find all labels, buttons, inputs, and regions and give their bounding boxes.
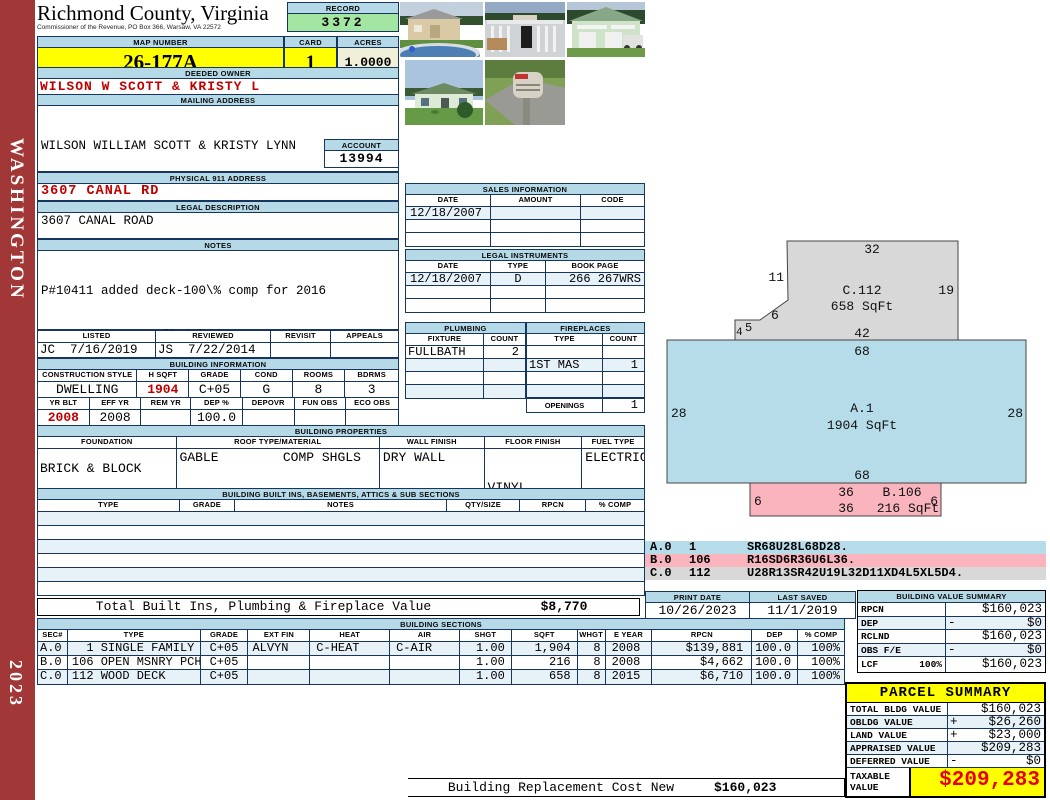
builtins-rpcn-label: RPCN	[520, 500, 586, 511]
appeals-value	[331, 343, 398, 357]
builtins-type-label: TYPE	[38, 500, 180, 511]
effyr-value: 2008	[90, 410, 142, 425]
last-saved-value: 11/1/2019	[750, 603, 856, 619]
replacement-cost-value: $160,023	[714, 779, 844, 796]
plumbing-row: FULLBATH 2	[406, 346, 525, 359]
sales-row: 12/18/2007	[406, 207, 644, 220]
builtins-empty-row	[38, 540, 644, 554]
review-section: LISTED REVIEWED REVISIT APPEALS JC 7/16/…	[37, 330, 399, 358]
parcel-summary-label: PARCEL SUMMARY	[847, 684, 1044, 703]
sketch-legend: A.0 1 SR68U28L68D28. B.0 106 R16SD6R36U6…	[645, 541, 1046, 580]
bs-type-label: TYPE	[68, 630, 201, 641]
sketch-c-dim-notch-w: 5	[745, 321, 752, 335]
sketch-b-dim-top: 36	[838, 485, 854, 500]
wall-finish-label: WALL FINISH	[380, 437, 485, 448]
sketch-c-dim-notch-h: 4	[736, 327, 743, 339]
deeded-owner-label: DEEDED OWNER	[37, 67, 399, 79]
construction-style-label: CONSTRUCTION STYLE	[38, 370, 137, 381]
sales-amount-label: AMOUNT	[491, 195, 581, 206]
builtins-empty-row	[38, 582, 644, 595]
plumbing-row	[406, 359, 525, 372]
dep-pct-value: 100.0	[191, 410, 243, 425]
fireplace-type-value: 1ST MAS	[527, 359, 603, 371]
plumbing-section: PLUMBING FIXTURE COUNT FULLBATH 2	[405, 322, 526, 399]
linst-bookpage-label: BOOK PAGE	[546, 261, 644, 272]
funobs-value	[295, 410, 347, 425]
legal-instruments-section: LEGAL INSTRUMENTS DATE TYPE BOOK PAGE 12…	[405, 249, 645, 313]
builtins-comp-label: % COMP	[586, 500, 644, 511]
account-box: ACCOUNT 13994	[324, 139, 399, 168]
bs-whgt-label: WHGT	[578, 630, 606, 641]
linst-date-value: 12/18/2007	[406, 273, 491, 285]
taxable-value-row: TAXABLE VALUE $209,283	[847, 768, 1044, 796]
bs-air-label: AIR	[390, 630, 460, 641]
county-title: Richmond County, Virginia	[37, 2, 287, 24]
openings-value: 1	[603, 399, 644, 412]
sales-information-label: SALES INFORMATION	[405, 183, 645, 195]
building-sections-table: BUILDING SECTIONS SEC# TYPE GRADE EXT FI…	[37, 618, 845, 685]
sketch-b-dim-right: 6	[930, 494, 938, 509]
deeded-owner-section: DEEDED OWNER WILSON W SCOTT & KRISTY L	[37, 67, 399, 95]
photo-pool-deck[interactable]	[485, 2, 565, 57]
sketch-c-area: 658 SqFt	[831, 299, 893, 314]
fireplace-count-label: COUNT	[603, 334, 644, 345]
sales-information-section: SALES INFORMATION DATE AMOUNT CODE 12/18…	[405, 183, 645, 247]
revisit-value	[271, 343, 331, 357]
yrblt-label: YR BLT	[38, 398, 90, 409]
sales-date-label: DATE	[406, 195, 491, 206]
depovr-label: DEPOVR	[243, 398, 295, 409]
fireplaces-label: FIREPLACES	[526, 322, 645, 334]
legal-instrument-row: 12/18/2007 D 266 267WRS	[406, 273, 644, 286]
linst-type-value: D	[491, 273, 546, 285]
sales-amount-value	[491, 207, 581, 219]
record-value: 3372	[287, 14, 399, 32]
card-header: Richmond County, Virginia Commissioner o…	[37, 2, 399, 35]
bdrms-label: BDRMS	[345, 370, 398, 381]
fireplace-type-label: TYPE	[527, 334, 603, 345]
building-information-section: BUILDING INFORMATION CONSTRUCTION STYLE …	[37, 358, 399, 426]
roof-label: ROOF TYPE/MATERIAL	[177, 437, 380, 448]
notes-section: NOTES P#10411 added deck-100\% comp for …	[37, 239, 399, 330]
print-date-value: 10/26/2023	[645, 603, 750, 619]
floor-finish-value-1: VINYL	[488, 480, 582, 488]
physical-address-label: PHYSICAL 911 ADDRESS	[37, 172, 399, 184]
mailing-address-label: MAILING ADDRESS	[37, 94, 399, 106]
dep-pct-label: DEP %	[191, 398, 243, 409]
built-ins-label: BUILDING BUILT INS, BASEMENTS, ATTICS & …	[37, 488, 645, 500]
sketch-c-dim-right: 19	[938, 283, 954, 298]
building-information-label: BUILDING INFORMATION	[37, 358, 399, 370]
builtins-qty-label: QTY/SIZE	[447, 500, 521, 511]
builtins-empty-row	[38, 512, 644, 526]
building-value-summary: BUILDING VALUE SUMMARY RPCN $160,023 DEP…	[857, 590, 1046, 673]
linst-date-label: DATE	[406, 261, 491, 272]
bs-dep-label: DEP	[752, 630, 798, 641]
sketch-c-dim-top: 32	[864, 242, 880, 257]
physical-address-value: 3607 CANAL RD	[37, 184, 399, 201]
builtins-total-label: Total Built Ins, Plumbing & Fireplace Va…	[38, 599, 489, 615]
building-properties-section: BUILDING PROPERTIES FOUNDATION ROOF TYPE…	[37, 425, 645, 489]
legal-instrument-row	[406, 299, 644, 312]
sales-date-value: 12/18/2007	[406, 207, 491, 219]
built-ins-section: BUILDING BUILT INS, BASEMENTS, ATTICS & …	[37, 488, 645, 596]
last-saved-label: LAST SAVED	[750, 591, 856, 603]
county-subtitle: Commissioner of the Revenue, PO Box 366,…	[37, 24, 287, 31]
building-sections-label: BUILDING SECTIONS	[37, 618, 845, 630]
floor-finish-label: FLOOR FINISH	[485, 437, 583, 448]
building-section-row: C.0 112 WOOD DECK C+05 1.00 658 8 2015 $…	[38, 670, 844, 684]
sales-code-value	[581, 207, 644, 219]
remyr-value	[141, 410, 191, 425]
account-label: ACCOUNT	[324, 139, 399, 151]
legal-description-section: LEGAL DESCRIPTION 3607 CANAL ROAD	[37, 201, 399, 239]
rooms-value: 8	[293, 382, 346, 397]
sketch-a-dim-top: 68	[854, 344, 870, 359]
fixture-count-value: 2	[484, 346, 525, 358]
building-section-row: A.0 1 SINGLE FAMILY C+05 ALVYN C-HEAT C-…	[38, 642, 844, 656]
linst-type-label: TYPE	[491, 261, 546, 272]
bs-grade-label: GRADE	[201, 630, 249, 641]
legend-c-path: U28R13SR42U19L32D11XD4L5XL5D4.	[747, 567, 1046, 580]
legend-c-sec: C.0	[645, 567, 689, 580]
yrblt-value: 2008	[38, 410, 90, 425]
sketch-a-dim-left: 28	[671, 406, 687, 421]
hsqft-label: H SQFT	[137, 370, 189, 381]
year-spine-label: 2023	[5, 660, 26, 708]
bs-sec-label: SEC#	[38, 630, 68, 641]
sketch-section-a-shape	[667, 340, 1026, 483]
acres-label: ACRES	[337, 36, 399, 48]
record-label: RECORD	[287, 2, 399, 14]
roof-material-value: COMP SHGLS	[283, 450, 361, 488]
print-info: PRINT DATE 10/26/2023 LAST SAVED 11/1/20…	[645, 591, 856, 619]
photo-shed-pool[interactable]	[400, 2, 483, 57]
taxable-value-label: TAXABLE VALUE	[847, 768, 911, 796]
county-spine-label: WASHINGTON	[5, 138, 27, 301]
bs-sqft-label: SQFT	[512, 630, 578, 641]
sketch-c-dim-bottom: 42	[854, 326, 870, 341]
photo-dwelling[interactable]	[405, 60, 483, 125]
fireplace-row	[527, 385, 644, 398]
bs-extfin-label: EXT FIN	[248, 630, 310, 641]
binder-spine: WASHINGTON 2023	[0, 0, 35, 800]
legal-instruments-label: LEGAL INSTRUMENTS	[405, 249, 645, 261]
hsqft-value: 1904	[137, 382, 189, 397]
reviewed-value: JS 7/22/2014	[156, 343, 271, 357]
fuel-type-value: ELECTRIC	[582, 449, 644, 488]
fireplace-row: 1ST MAS 1	[527, 359, 644, 372]
foundation-label: FOUNDATION	[38, 437, 177, 448]
property-record-card: WASHINGTON 2023 Richmond County, Virgini…	[0, 0, 1050, 800]
cond-value: G	[241, 382, 293, 397]
roof-type-value: GABLE	[180, 450, 219, 488]
bs-shgt-label: SHGT	[460, 630, 512, 641]
plumbing-row	[406, 372, 525, 385]
plumbing-label: PLUMBING	[405, 322, 526, 334]
funobs-label: FUN OBS	[295, 398, 347, 409]
listed-value: JC 7/16/2019	[38, 343, 156, 357]
rooms-label: ROOMS	[293, 370, 346, 381]
replacement-cost-label: Building Replacement Cost New	[408, 779, 714, 796]
fixture-count-label: COUNT	[484, 334, 525, 345]
fireplace-row	[527, 346, 644, 359]
photo-mailbox[interactable]	[485, 60, 565, 125]
legal-instrument-row	[406, 286, 644, 299]
legal-description-label: LEGAL DESCRIPTION	[37, 201, 399, 213]
listed-label: LISTED	[38, 331, 156, 342]
card-label: CARD	[284, 36, 337, 48]
bs-comp-label: % COMP	[798, 630, 844, 641]
building-properties-label: BUILDING PROPERTIES	[37, 425, 645, 437]
legal-description-value: 3607 CANAL ROAD	[37, 213, 399, 239]
legend-row-c: C.0 112 U28R13SR42U19L32D11XD4L5XL5D4.	[645, 567, 1046, 580]
sketch-a-area: 1904 SqFt	[827, 418, 897, 433]
fireplace-row	[527, 372, 644, 385]
sketch-a-dim-right: 28	[1007, 406, 1023, 421]
builtins-empty-row	[38, 526, 644, 540]
sketch-c-dim-left: 11	[768, 270, 784, 285]
taxable-value: $209,283	[911, 768, 1044, 796]
grade-label: GRADE	[189, 370, 241, 381]
remyr-label: REM YR	[141, 398, 191, 409]
ecoobs-label: ECO OBS	[346, 398, 398, 409]
photo-mailbox-image	[485, 60, 565, 125]
fixture-value: FULLBATH	[406, 346, 484, 358]
builtins-grade-label: GRADE	[180, 500, 236, 511]
sketch-b-dim-left: 6	[754, 494, 762, 509]
plumbing-row	[406, 385, 525, 398]
deeded-owner-value: WILSON W SCOTT & KRISTY L	[37, 79, 399, 95]
ecoobs-value	[346, 410, 398, 425]
bvs-row-lcf: LCF100% $160,023	[858, 657, 1045, 672]
photo-garage-image	[567, 2, 645, 57]
builtins-empty-row	[38, 554, 644, 568]
linst-bookpage-value: 266 267WRS	[546, 273, 644, 285]
sketch-c-dim-diag: 6	[771, 308, 779, 323]
reviewed-label: REVIEWED	[156, 331, 271, 342]
replacement-cost-row: Building Replacement Cost New $160,023	[408, 778, 845, 797]
county-title-block: Richmond County, Virginia Commissioner o…	[37, 2, 287, 35]
bs-heat-label: HEAT	[310, 630, 390, 641]
account-value: 13994	[324, 151, 399, 168]
bvs-row-rpcn: RPCN $160,023	[858, 603, 1045, 617]
openings-label: OPENINGS	[527, 399, 603, 412]
fixture-label: FIXTURE	[406, 334, 484, 345]
builtins-total-row: Total Built Ins, Plumbing & Fireplace Va…	[37, 598, 640, 616]
builtins-notes-label: NOTES	[235, 500, 446, 511]
sketch-a-name: A.1	[850, 401, 874, 416]
effyr-label: EFF YR	[90, 398, 142, 409]
legend-c-code: 112	[689, 567, 747, 580]
bdrms-value: 3	[345, 382, 398, 397]
sketch-b-dim-bottom: 36	[838, 501, 854, 516]
bvs-row-rclnd: RCLND $160,023	[858, 630, 1045, 644]
builtins-empty-row	[38, 568, 644, 582]
building-sketch: 32 11 C.112 658 SqFt 19 6 5 4 42 68 28 A…	[650, 230, 1046, 538]
sketch-b-name: B.106	[882, 485, 921, 500]
builtins-total-value: $8,770	[489, 599, 639, 615]
wall-finish-value: DRY WALL	[380, 449, 485, 488]
record-box: RECORD 3372	[287, 2, 399, 35]
sales-row	[406, 220, 644, 233]
depovr-value	[243, 410, 295, 425]
physical-address-section: PHYSICAL 911 ADDRESS 3607 CANAL RD	[37, 172, 399, 201]
fireplaces-section: FIREPLACES TYPE COUNT 1ST MAS 1 OPENINGS…	[526, 322, 645, 413]
parcel-row-deferred: DEFERRED VALUE -$0	[847, 755, 1044, 768]
photo-garage[interactable]	[567, 2, 645, 57]
sales-row	[406, 233, 644, 246]
notes-line-1: P#10411 added deck-100\% comp for 2016	[41, 284, 398, 299]
parcel-summary: PARCEL SUMMARY TOTAL BLDG VALUE $160,023…	[845, 682, 1046, 798]
bs-eyear-label: E YEAR	[606, 630, 653, 641]
parcel-row-appraised: APPRAISED VALUE $209,283	[847, 742, 1044, 755]
fireplace-count-value: 1	[603, 359, 644, 371]
fuel-type-label: FUEL TYPE	[582, 437, 644, 448]
cond-label: COND	[241, 370, 293, 381]
bvs-row-obs: OBS F/E -$0	[858, 644, 1045, 657]
print-date-label: PRINT DATE	[645, 591, 750, 603]
photo-pool-deck-image	[485, 2, 565, 57]
photo-dwelling-image	[405, 60, 483, 125]
construction-style-value: DWELLING	[38, 382, 137, 397]
sketch-c-name: C.112	[842, 283, 881, 298]
foundation-value: BRICK & BLOCK	[38, 449, 177, 488]
photo-shed-pool-image	[400, 2, 483, 57]
appeals-label: APPEALS	[331, 331, 398, 342]
map-number-label: MAP NUMBER	[37, 36, 284, 48]
grade-value: C+05	[189, 382, 241, 397]
sketch-a-dim-bottom: 68	[854, 468, 870, 483]
revisit-label: REVISIT	[271, 331, 331, 342]
bs-rpcn-label: RPCN	[652, 630, 752, 641]
sales-code-label: CODE	[581, 195, 644, 206]
building-section-row: B.0 106 OPEN MSNRY PCH C+05 1.00 216 8 2…	[38, 656, 844, 670]
notes-label: NOTES	[37, 239, 399, 251]
